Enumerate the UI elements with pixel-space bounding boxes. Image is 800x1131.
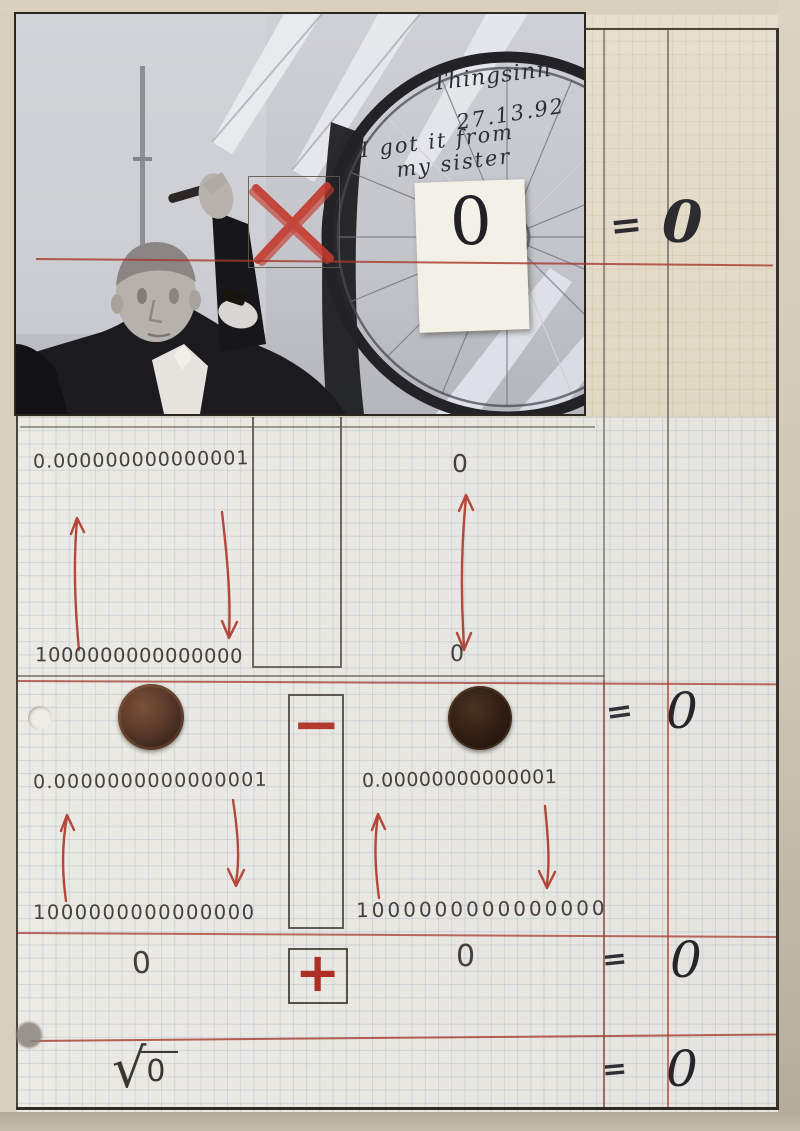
coins-left-tiny-number: 0.0000000000000001 — [33, 769, 268, 793]
red-minus-sign: − — [292, 690, 341, 758]
page-edge-right — [778, 0, 800, 1131]
sqrt-result-zero: 0 — [666, 1040, 698, 1098]
page-edge-bottom — [0, 1112, 800, 1131]
zero-bottom: 0 — [450, 642, 464, 667]
huge-number: 1000000000000000 — [35, 643, 243, 667]
sqrt-expression: √ 0 — [112, 1042, 178, 1096]
frame-line-left — [16, 413, 18, 1110]
red-x-mark — [240, 166, 346, 274]
coins-result-zero: 0 — [666, 682, 698, 740]
coins-right-tiny-number: 0.00000000000001 — [362, 766, 558, 792]
addition-zero-right: 0 — [456, 939, 475, 974]
punch-hole-top — [28, 706, 52, 730]
coin-right — [448, 686, 512, 750]
addition-equals-sign: = — [600, 941, 629, 978]
column-rule-2-upper — [667, 30, 669, 680]
graph-paper-band — [16, 417, 778, 1112]
radicand-zero: 0 — [141, 1051, 177, 1089]
artwork-collage: Thingsinn 27.13.92 I got it from my sist… — [0, 0, 800, 1131]
zero-card-value: 0 — [449, 188, 493, 255]
coins-right-huge-number: 1000000000000000 — [356, 896, 608, 922]
frame-line-top — [586, 28, 778, 30]
red-plus-sign: + — [295, 941, 340, 1004]
frame-line-bottom — [16, 1107, 778, 1110]
punch-hole-bottom — [16, 1022, 42, 1048]
pencil-rule-mid — [18, 675, 605, 677]
addition-zero-left: 0 — [131, 945, 152, 981]
top-equals-sign: = — [608, 200, 644, 248]
sqrt-equals-sign: = — [601, 1051, 629, 1088]
column-rule-1-lower — [603, 680, 605, 1107]
top-result-zero: 0 — [661, 187, 704, 256]
column-rule-1-upper — [603, 30, 605, 680]
coins-left-huge-number: 1000000000000000 — [33, 901, 256, 924]
addition-result-zero: 0 — [670, 931, 702, 989]
zero-card: 0 — [414, 179, 529, 333]
tiny-number: 0.000000000000001 — [33, 447, 250, 473]
zero-top: 0 — [452, 449, 468, 478]
coin-left — [118, 684, 184, 750]
coins-equals-sign: = — [603, 690, 635, 731]
frame-line-right — [776, 28, 779, 1110]
pencil-column-box — [252, 417, 342, 668]
